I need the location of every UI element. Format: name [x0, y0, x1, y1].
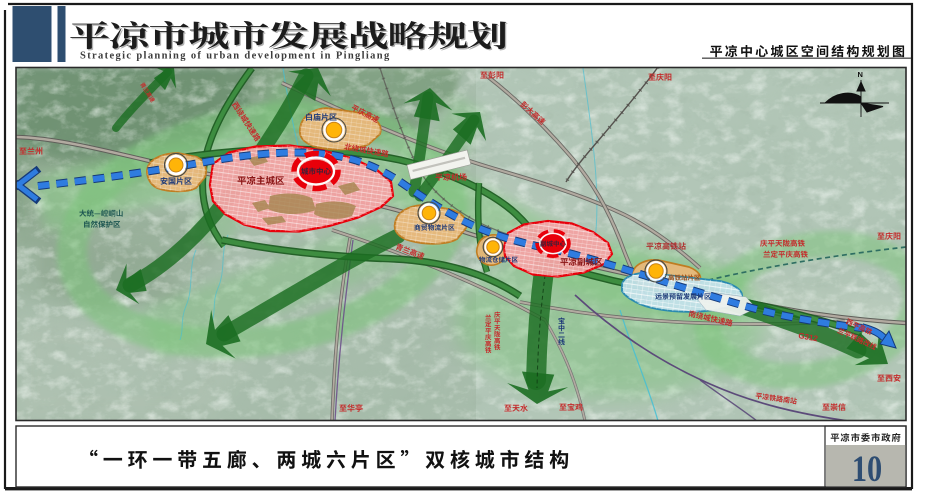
svg-text:N: N [858, 70, 863, 79]
svg-text:10: 10 [852, 449, 882, 489]
svg-text:Strategic planning of urban de: Strategic planning of urban development … [80, 51, 391, 62]
